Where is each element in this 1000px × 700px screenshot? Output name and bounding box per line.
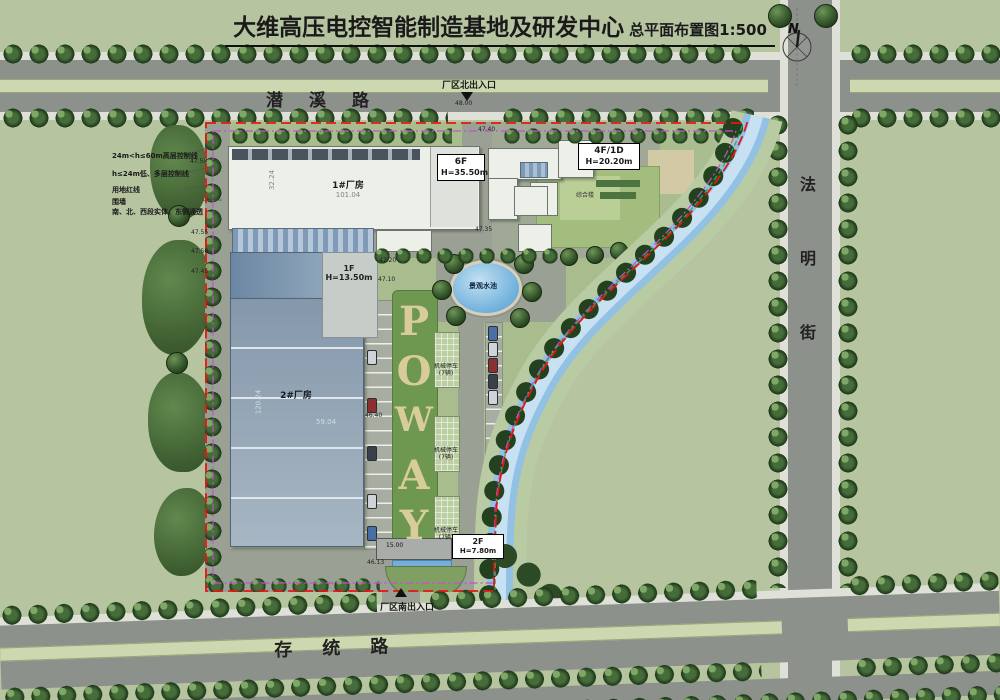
mech-parking-label: 机械停车(7辆) xyxy=(433,448,459,461)
note-leader-line xyxy=(185,200,222,201)
garden-letter: W xyxy=(392,400,436,440)
gatehouse-height: H=7.80m xyxy=(456,547,500,556)
research-height: H=20.20m xyxy=(582,157,636,167)
road-qianxi-label: 潜溪路 xyxy=(266,86,395,111)
gatehouse-floors: 2F xyxy=(456,537,500,547)
note-fence: 围墙 xyxy=(112,197,126,207)
mech-parking-label: 机械停车(7辆) xyxy=(433,364,459,377)
garden-letter: P xyxy=(392,298,436,345)
spot-elevation: 47.20 xyxy=(379,257,396,264)
spot-elevation: 47.40 xyxy=(478,126,495,133)
north-entrance-label: 厂区北出入口 xyxy=(424,78,514,91)
title-suffix: 总平面布置图1:500 xyxy=(629,21,767,39)
factory2-width-dim: 59.04 xyxy=(316,418,336,426)
red-property-line xyxy=(206,123,747,591)
spot-elevation: 47.50 xyxy=(191,248,208,255)
section1f-height: H=13.50m xyxy=(324,273,374,282)
spot-elevation: 47.35 xyxy=(475,226,492,233)
research-labelbox: 4F/1D H=20.20m xyxy=(578,143,640,170)
road-faming-label: 法明街 xyxy=(794,176,818,398)
garden-letter: O xyxy=(392,348,436,395)
spot-elevation: 47.10 xyxy=(378,276,395,283)
drawing-title: 大维高压电控智能制造基地及研发中心 总平面布置图1:500 xyxy=(0,8,1000,47)
tower-6f-labelbox: 6F H=35.50m xyxy=(437,154,485,181)
factory2-depth-dim: 120.24 xyxy=(254,390,262,415)
spot-elevation: 46.13 xyxy=(367,559,384,566)
pool-label: 景观水池 xyxy=(455,281,511,291)
tower-floors: 6F xyxy=(441,157,481,168)
note-leader-line xyxy=(185,186,206,189)
section1f-label: 1F H=13.50m xyxy=(324,264,374,282)
note-red-line: 用地红线 xyxy=(112,185,140,195)
note-fence-detail: 南、北、西段实体、东侧通透 xyxy=(112,207,203,217)
site-plan-drawing: 存统路 N 大维高压电控智能制造基地及研发中心 总平面布置图1:500 潜溪路 … xyxy=(0,0,1000,700)
note-lowrise-control: h≤24m低、多层控制线 xyxy=(112,169,189,179)
low-rise-control-line-green xyxy=(495,126,742,590)
complex-building-label: 综合楼 xyxy=(576,190,594,199)
factory1-width-dim: 101.04 xyxy=(328,191,368,199)
gatehouse-labelbox: 2F H=7.80m xyxy=(452,534,504,559)
factory2-label: 2#厂房 xyxy=(266,388,326,401)
spot-elevation: 47.45 xyxy=(191,268,208,275)
south-entrance-arrow-icon xyxy=(395,588,407,597)
spot-elevation: 47.50 xyxy=(190,158,207,165)
research-floors: 4F/1D xyxy=(582,146,636,157)
south-entrance-label: 厂区南出入口 xyxy=(362,600,452,613)
spot-elevation: 46.40 xyxy=(365,412,382,419)
tower-height: H=35.50m xyxy=(441,168,481,178)
note-highrise-control: 24m<h≤60m高层控制线 xyxy=(112,151,198,161)
garden-letter: A xyxy=(392,452,436,499)
building-control-line-magenta xyxy=(213,131,736,583)
spot-elevation: 48.00 xyxy=(455,100,472,107)
factory1-depth-dim: 32.24 xyxy=(268,170,276,190)
garden-letter: Y xyxy=(392,502,436,549)
spot-elevation: 47.55 xyxy=(191,229,208,236)
mech-parking-label: 机械停车(7辆) xyxy=(433,528,459,541)
section1f-floors: 1F xyxy=(324,264,374,273)
lines-layer xyxy=(0,0,1000,700)
title-main: 大维高压电控智能制造基地及研发中心 xyxy=(233,15,624,41)
factory1-label: 1#厂房 xyxy=(318,178,378,191)
note-leader-line xyxy=(185,166,215,173)
